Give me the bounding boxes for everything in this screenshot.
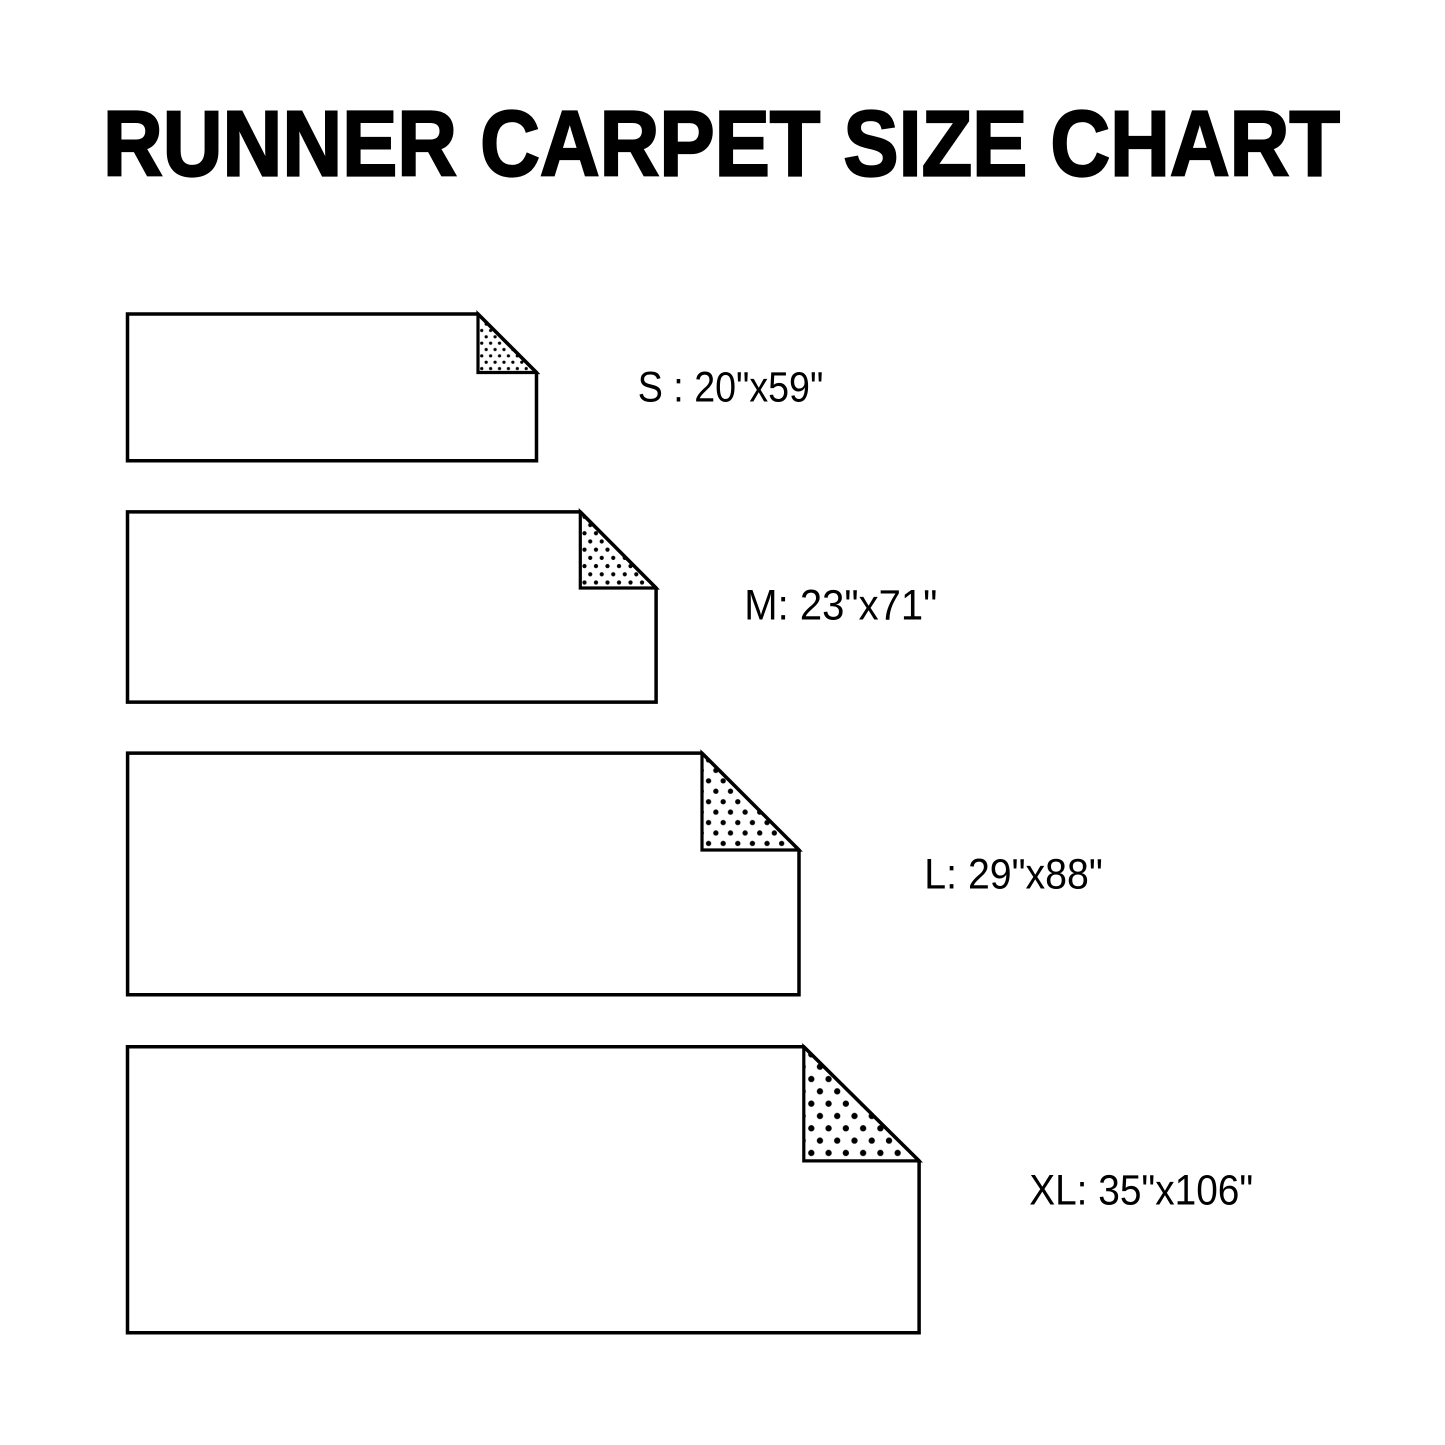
svg-text:RUNNER CARPET SIZE CHART: RUNNER CARPET SIZE CHART (103, 92, 1340, 196)
svg-text:XL: 35"x106": XL: 35"x106" (1029, 1167, 1253, 1214)
svg-text:M: 23"x71": M: 23"x71" (744, 582, 937, 629)
svg-text:S : 20"x59": S : 20"x59" (638, 364, 824, 411)
svg-text:L: 29"x88": L: 29"x88" (924, 851, 1103, 898)
